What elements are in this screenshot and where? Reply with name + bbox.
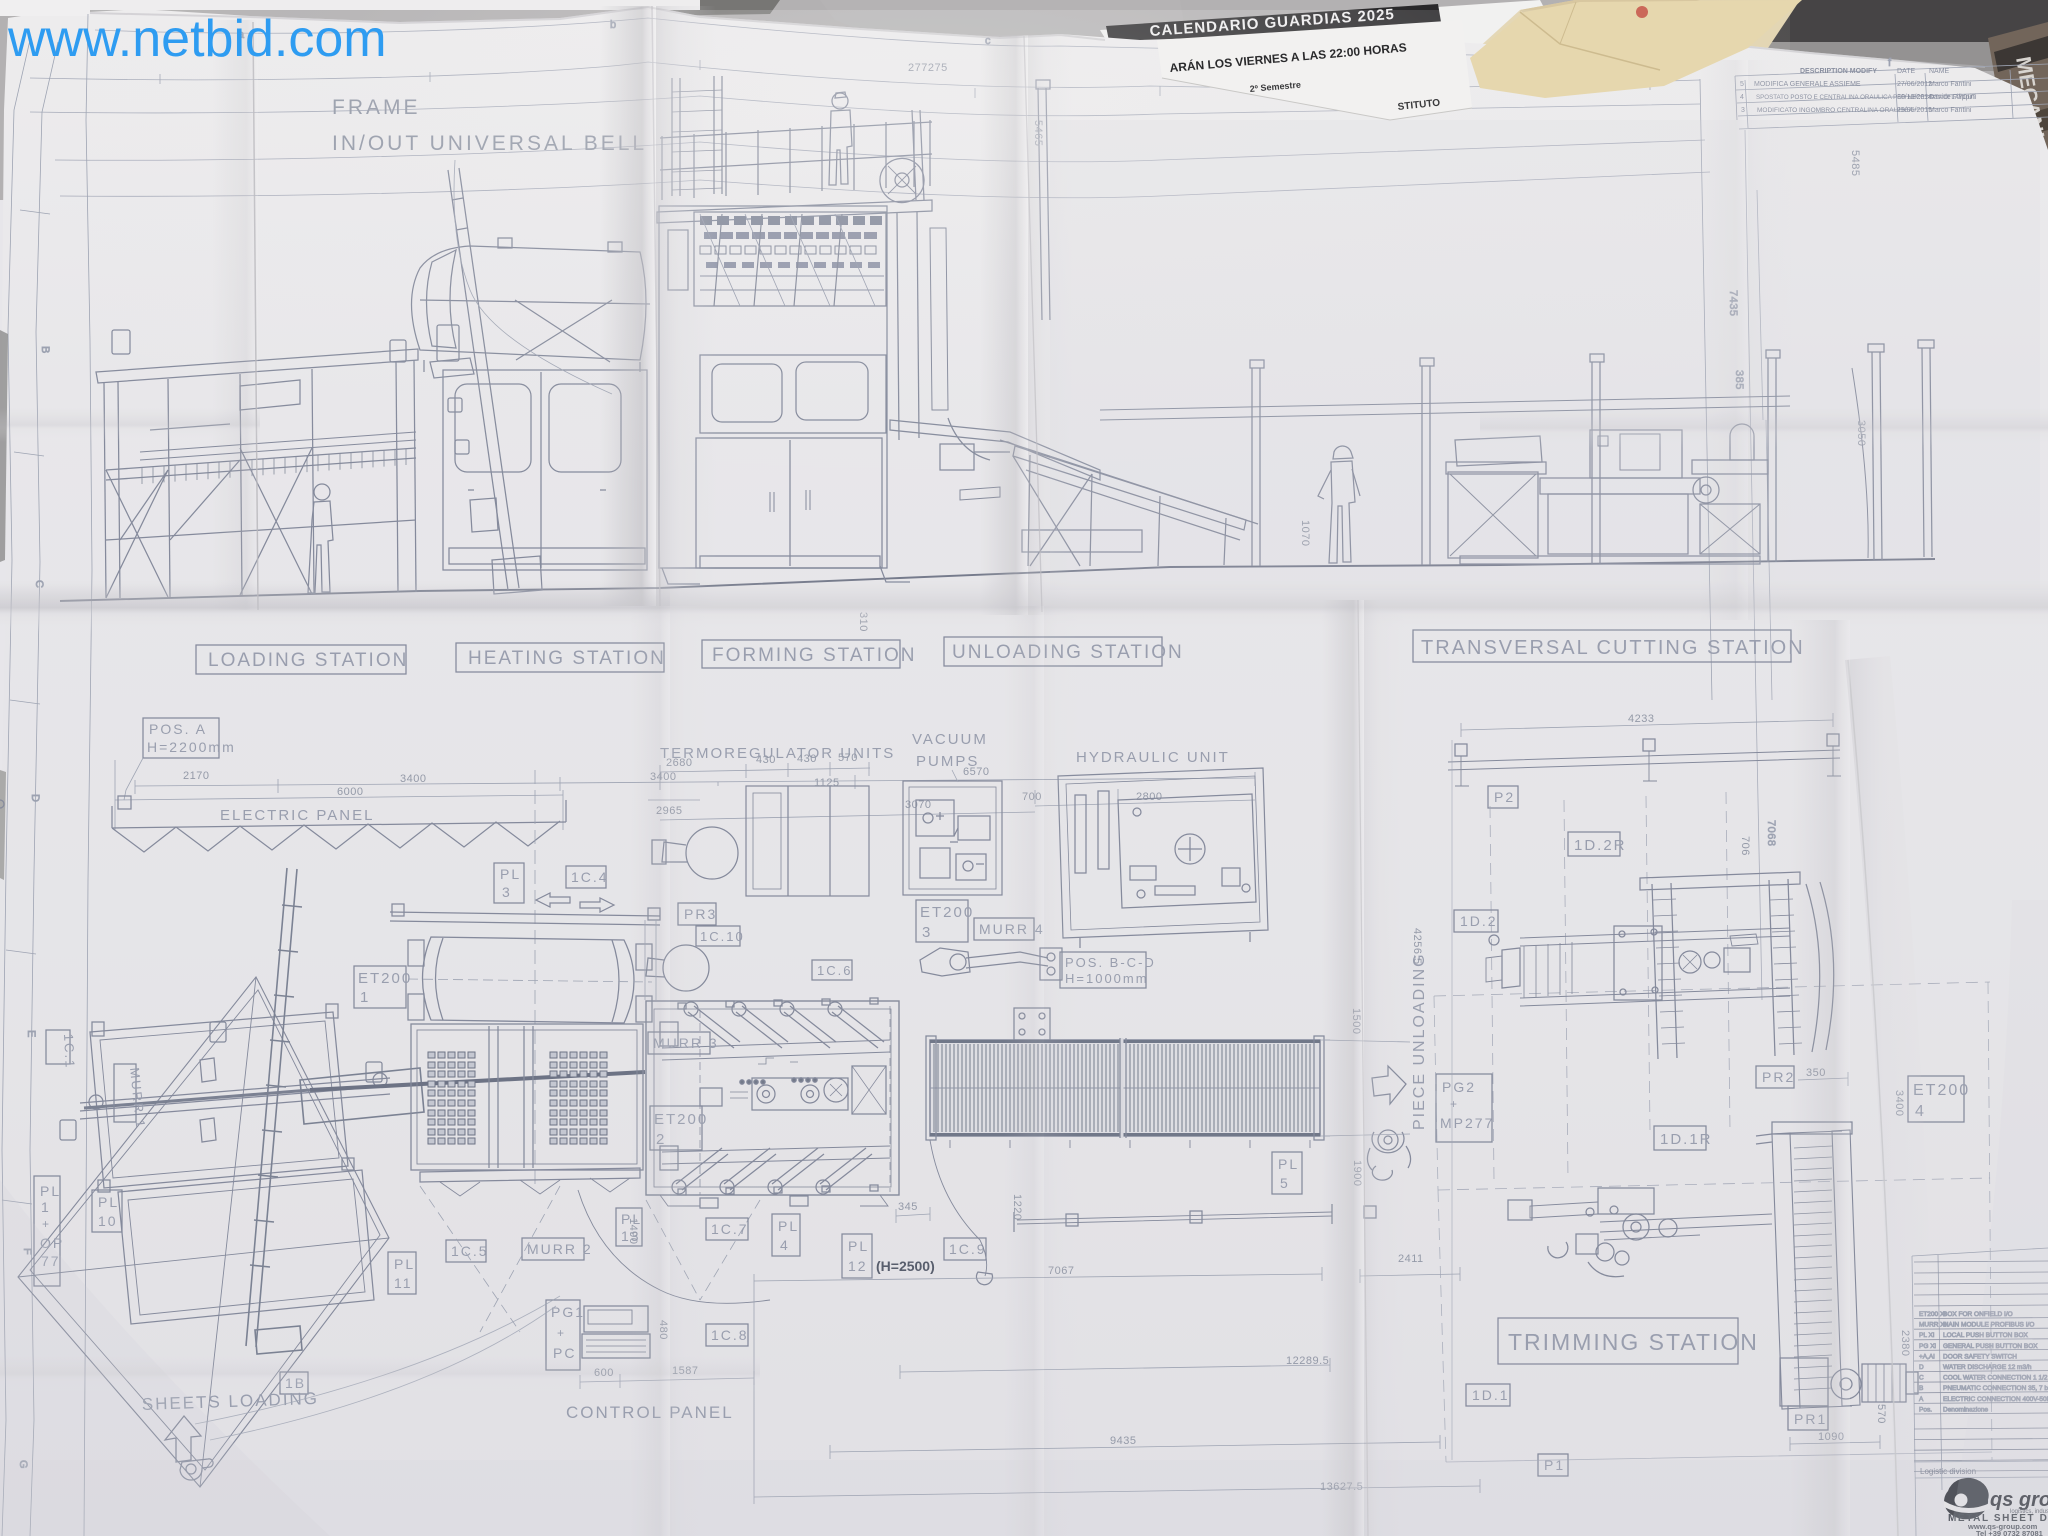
- svg-text:www.netbid.com: www.netbid.com: [7, 10, 387, 68]
